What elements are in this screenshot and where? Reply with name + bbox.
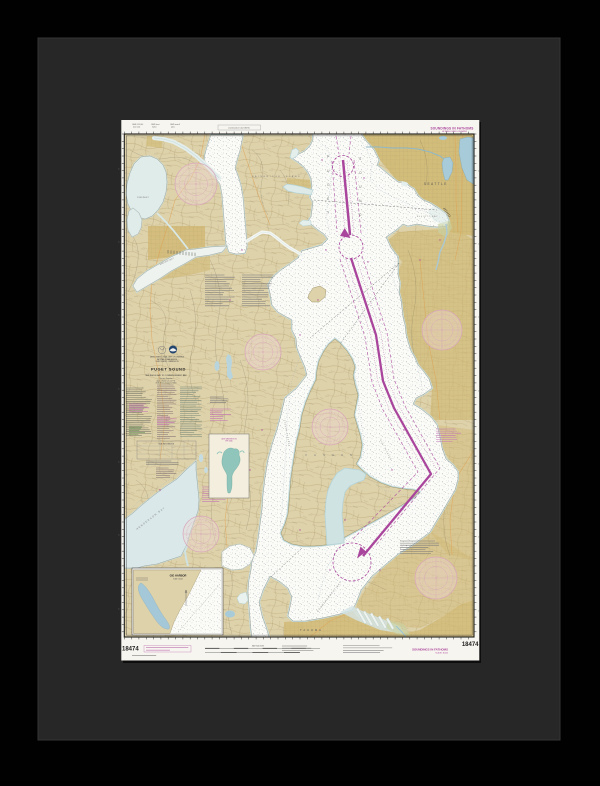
svg-text:48: 48	[119, 388, 121, 390]
svg-text:48: 48	[478, 610, 480, 612]
svg-text:H: H	[332, 453, 334, 457]
svg-text:48: 48	[119, 314, 121, 316]
svg-text:48: 48	[478, 536, 480, 538]
svg-text:TACOMA: TACOMA	[300, 628, 323, 632]
svg-text:48: 48	[478, 170, 480, 172]
svg-text:SOUNDINGS IN FATHOMS: SOUNDINGS IN FATHOMS	[430, 126, 473, 130]
svg-text:T: T	[327, 211, 329, 215]
svg-text:AT MEAN LOWER LOW WATER: AT MEAN LOWER LOW WATER	[442, 130, 467, 133]
svg-text:ELLIOTT BAY: ELLIOTT BAY	[417, 215, 438, 218]
svg-text:48: 48	[478, 243, 480, 245]
svg-text:SCALE 1:80,000: SCALE 1:80,000	[435, 651, 448, 654]
svg-text:48: 48	[478, 463, 480, 465]
svg-text:S: S	[323, 453, 325, 457]
svg-text:PUGET SOUND: PUGET SOUND	[151, 366, 186, 371]
svg-text:SHILSHOLE BAY TO COMMENCEMENT: SHILSHOLE BAY TO COMMENCEMENT BAY	[145, 374, 187, 377]
svg-text:O: O	[359, 171, 362, 175]
svg-text:18474: 18474	[462, 642, 479, 648]
svg-text:48: 48	[478, 390, 480, 392]
svg-text:BAINBRIDGE ISLAND: BAINBRIDGE ISLAND	[252, 175, 301, 178]
svg-text:18474: 18474	[122, 647, 139, 653]
svg-text:SEATTLE: SEATTLE	[424, 182, 448, 186]
svg-text:N: N	[350, 453, 352, 457]
svg-text:48: 48	[119, 461, 121, 463]
svg-text:plans: plans	[171, 126, 175, 128]
svg-text:V: V	[305, 453, 307, 457]
svg-text:GIG HARBOR: GIG HARBOR	[170, 574, 187, 578]
svg-text:48: 48	[119, 168, 121, 170]
svg-text:(Continued on Chart 18473): (Continued on Chart 18473)	[229, 127, 250, 130]
svg-text:G: G	[327, 183, 330, 187]
svg-text:harbor: harbor	[152, 126, 157, 128]
svg-text:48: 48	[119, 241, 121, 243]
svg-text:A: A	[314, 453, 316, 457]
svg-text:48: 48	[119, 534, 121, 536]
svg-text:SOUNDINGS IN FATHOMS: SOUNDINGS IN FATHOMS	[412, 647, 448, 651]
svg-text:DYES INLET: DYES INLET	[137, 197, 149, 199]
svg-text:48: 48	[478, 316, 480, 318]
svg-text:18446 1:25,000: 18446 1:25,000	[132, 124, 143, 126]
svg-text:48: 48	[119, 608, 121, 610]
